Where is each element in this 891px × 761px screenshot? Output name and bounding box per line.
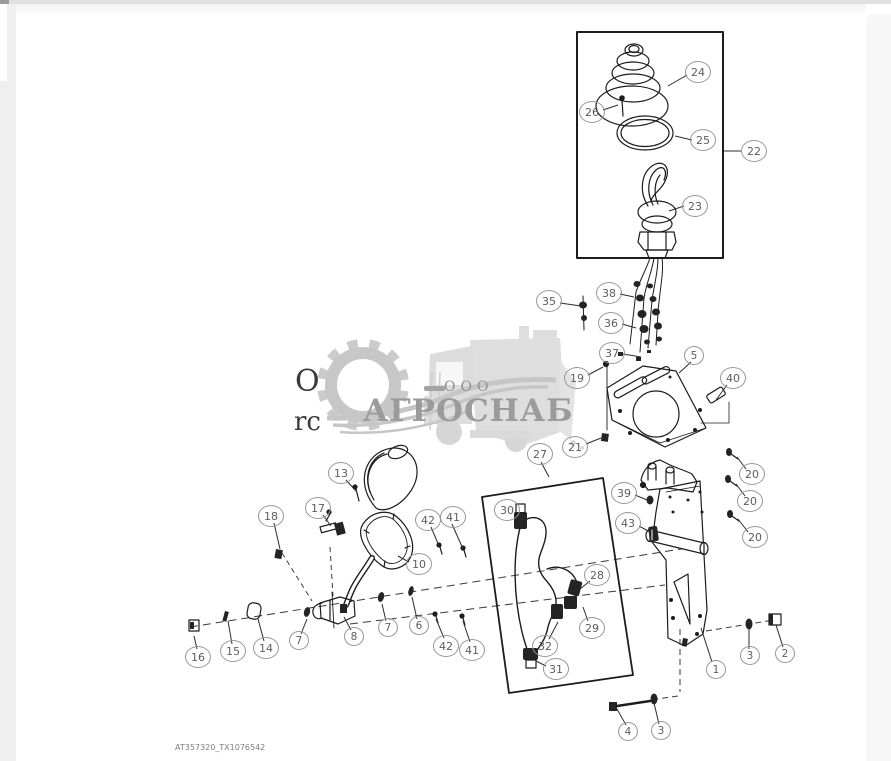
callout-21: 21: [562, 436, 588, 458]
callout-17: 17: [305, 497, 331, 519]
part-40: [701, 386, 729, 423]
drawing-code: AT357320_TX1076542: [175, 743, 265, 752]
callout-32: 32: [532, 635, 558, 657]
part-4-bolt: [609, 694, 658, 712]
callout-42b: 42: [433, 635, 459, 657]
callout-26: 26: [579, 101, 605, 123]
parts-2-3-fasteners: [746, 614, 782, 630]
part-26-screw: [620, 96, 624, 116]
part-1-bracket: [641, 460, 709, 647]
callout-8: 8: [344, 627, 364, 646]
dashed-axis-lines: [190, 546, 774, 700]
callout-27: 27: [527, 443, 553, 465]
callout-3a: 3: [740, 646, 760, 665]
callout-43: 43: [615, 512, 641, 534]
callout-35: 35: [536, 290, 562, 312]
watermark-company-name: АГРОСНАБ: [363, 393, 574, 429]
callout-31: 31: [543, 658, 569, 680]
callout-22: 22: [741, 140, 767, 162]
part-39-grommet: [647, 496, 654, 505]
callout-30: 30: [494, 499, 520, 521]
callout-16: 16: [185, 646, 211, 668]
callout-20c: 20: [742, 526, 768, 548]
joystick-wires: [583, 258, 663, 352]
callout-18: 18: [258, 505, 284, 527]
part-13-screw: [353, 485, 359, 501]
part-8-lever: [313, 558, 372, 628]
part-18-nut: [274, 549, 282, 559]
callout-7b: 7: [378, 618, 398, 637]
callout-19: 19: [564, 367, 590, 389]
callout-25: 25: [690, 129, 716, 151]
callout-39: 39: [611, 482, 637, 504]
callout-6: 6: [409, 616, 429, 635]
part-25-oring: [617, 116, 673, 150]
cropped-text-line2: rc: [294, 407, 321, 437]
callout-23: 23: [682, 195, 708, 217]
callout-42a: 42: [415, 509, 441, 531]
callout-7a: 7: [289, 631, 309, 650]
callout-41a: 41: [440, 506, 466, 528]
callout-40: 40: [720, 367, 746, 389]
callout-29: 29: [579, 617, 605, 639]
callout-10: 10: [406, 553, 432, 575]
callout-41b: 41: [459, 639, 485, 661]
callout-5: 5: [684, 346, 704, 365]
callout-37: 37: [599, 342, 625, 364]
callout-28: 28: [584, 564, 610, 586]
parts-diagram-page: ООО АГРОСНАБ O rc AT357320_TX1076542 24 …: [0, 0, 891, 761]
callout-20a: 20: [739, 463, 765, 485]
callout-2: 2: [775, 644, 795, 663]
callout-15: 15: [220, 640, 246, 662]
callout-14: 14: [253, 637, 279, 659]
part-24-boot: [596, 44, 668, 126]
callout-24: 24: [685, 61, 711, 83]
callout-4: 4: [618, 722, 638, 741]
cropped-text-line1: O: [295, 364, 320, 399]
lower-boot: [364, 443, 417, 510]
callout-1: 1: [706, 660, 726, 679]
callout-38: 38: [596, 282, 622, 304]
callout-20b: 20: [737, 490, 763, 512]
callout-13: 13: [328, 462, 354, 484]
part-5-plate: [607, 365, 706, 447]
callout-3b: 3: [651, 721, 671, 740]
callout-36: 36: [598, 312, 624, 334]
part-21-nut: [601, 433, 609, 442]
